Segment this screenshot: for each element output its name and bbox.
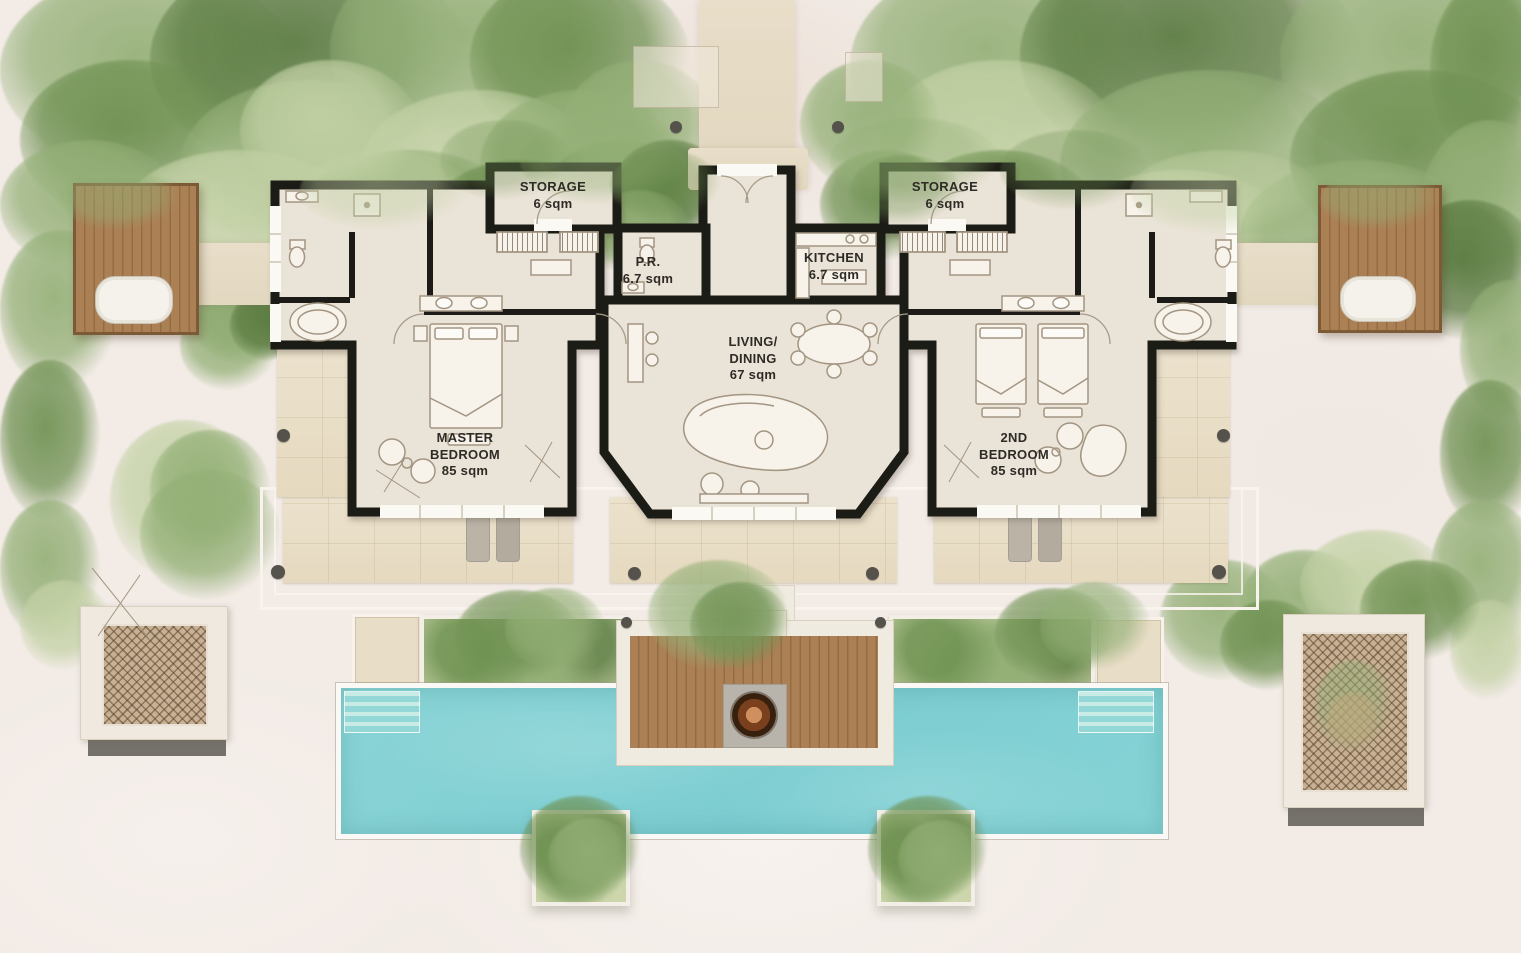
vegetation-blob — [120, 150, 360, 290]
vegetation-blob — [330, 0, 630, 160]
dining-table — [791, 310, 877, 378]
column-dot — [271, 565, 285, 579]
room-label-second-bedroom: 2ND BEDROOM 85 sqm — [954, 430, 1074, 480]
planting-bed-right — [889, 615, 1095, 697]
vegetation-blob — [1430, 500, 1521, 650]
column-dot — [832, 121, 844, 133]
room-area: 85 sqm — [405, 463, 525, 480]
pool-steps-left — [344, 691, 420, 733]
column-dot — [866, 567, 879, 580]
vegetation-blob — [1290, 70, 1521, 250]
terrace-slab-center — [610, 497, 897, 583]
vegetation-blob — [548, 818, 636, 896]
room-name-line1: LIVING/ — [705, 334, 801, 351]
vegetation-blob — [0, 230, 120, 390]
pool-deck-wood — [630, 636, 878, 748]
sun-lounger — [1038, 498, 1062, 562]
vegetation-blob — [505, 588, 605, 670]
stone-pad-right — [1097, 620, 1161, 684]
vegetation-blob — [190, 265, 310, 365]
sun-lounger — [1008, 498, 1032, 562]
vegetation-blob — [1240, 160, 1480, 310]
vegetation-blob — [0, 500, 100, 640]
villa-floor-plan — [0, 0, 1521, 953]
privacy-screen-right-shadow — [1288, 800, 1424, 826]
privacy-screen-left-lattice — [102, 624, 208, 726]
interior-partitions — [279, 189, 1228, 312]
master-bed — [414, 324, 518, 445]
right-deck-path — [1228, 243, 1324, 305]
vegetation-blob — [1060, 70, 1360, 260]
vegetation-blob — [140, 470, 280, 600]
room-name-line1: MASTER — [405, 430, 525, 447]
room-label-living-dining: LIVING/ DINING 67 sqm — [705, 334, 801, 384]
column-dot — [670, 121, 682, 133]
vegetation-blob — [240, 60, 420, 200]
vegetation-blob — [180, 300, 280, 390]
vegetation-blob — [360, 90, 600, 250]
entrance-path — [699, 0, 795, 178]
vegetation-blob — [20, 60, 240, 220]
vegetation-blob — [480, 90, 680, 240]
outdoor-bathtub-left — [95, 276, 173, 324]
fire-pit-pad — [723, 684, 787, 748]
room-name: KITCHEN — [790, 250, 878, 267]
column-dot — [621, 617, 632, 628]
vegetation-blob — [1360, 560, 1480, 660]
room-label-storage-right: STORAGE 6 sqm — [885, 179, 1005, 212]
outdoor-bath-deck-right — [1318, 185, 1442, 333]
second-closets — [900, 232, 1007, 275]
room-area: 67 sqm — [705, 367, 801, 384]
fire-bowl — [732, 693, 776, 737]
room-area: 6 sqm — [885, 196, 1005, 213]
vegetation-blob — [1440, 380, 1521, 530]
room-label-kitchen: KITCHEN 6.7 sqm — [790, 250, 878, 283]
room-area: 6.7 sqm — [790, 267, 878, 284]
master-bath-fixtures — [286, 191, 380, 267]
vegetation-blob — [995, 588, 1115, 680]
second-bedroom-vanity — [1002, 296, 1084, 311]
vegetation-blob — [900, 150, 1100, 290]
column-dot — [875, 617, 886, 628]
entrance-hall-walls — [703, 170, 791, 316]
vegetation-blob — [180, 80, 440, 250]
vegetation-blob — [800, 60, 940, 190]
master-bathtub — [290, 303, 346, 341]
vegetation-blob — [0, 140, 180, 270]
vegetation-blob — [1220, 600, 1320, 690]
terrace-slab-right — [934, 497, 1228, 583]
vegetation-blob — [1450, 600, 1521, 700]
room-name: STORAGE — [885, 179, 1005, 196]
vegetation-blob — [1160, 560, 1290, 680]
room-name-line2: BEDROOM — [954, 447, 1074, 464]
vegetation-blob — [1300, 530, 1450, 640]
faint-pad-top-left — [633, 46, 719, 108]
stone-pad-left — [355, 617, 419, 683]
room-name-line2: DINING — [705, 351, 801, 368]
living-dining-walls — [604, 300, 904, 514]
vegetation-blob — [150, 430, 270, 550]
vegetation-blob — [898, 820, 986, 898]
second-bathtub — [1155, 303, 1211, 341]
vegetation-blob — [850, 0, 1150, 170]
vegetation-blob — [1060, 190, 1220, 300]
privacy-screen-left — [80, 606, 228, 740]
vegetation-blob — [1020, 0, 1360, 170]
terrace-outer-frame — [260, 487, 1259, 610]
vegetation-blob — [430, 160, 610, 280]
bar-counter — [628, 324, 658, 382]
room-area: 85 sqm — [954, 463, 1074, 480]
room-name: STORAGE — [493, 179, 613, 196]
column-dot — [1212, 565, 1226, 579]
bottom-planter-left — [532, 810, 630, 906]
vegetation-blob — [110, 420, 260, 580]
room-name: P.R. — [608, 254, 688, 271]
second-bath-fixtures — [1126, 191, 1231, 267]
site-plan-canvas: STORAGE 6 sqm STORAGE 6 sqm P.R. 6.7 sqm… — [0, 0, 1521, 953]
privacy-screen-right — [1283, 614, 1425, 808]
side-patio-right — [1152, 347, 1230, 497]
vegetation-blob — [610, 140, 730, 250]
vegetation-blob — [60, 170, 180, 230]
column-dot — [628, 567, 641, 580]
entrance-porch — [688, 148, 808, 190]
left-deck-path — [188, 243, 284, 305]
vegetation-blob — [1326, 692, 1382, 752]
vegetation-blob — [960, 200, 1120, 310]
privacy-screen-right-lattice — [1301, 632, 1409, 792]
vegetation-layer-over — [0, 0, 1521, 953]
curved-sofa — [684, 394, 828, 503]
vegetation-blob — [690, 582, 790, 670]
planting-bed-left — [420, 615, 626, 697]
room-area: 6 sqm — [493, 196, 613, 213]
column-dot — [277, 429, 290, 442]
vegetation-blob — [1400, 200, 1521, 340]
vegetation-blob — [1130, 150, 1320, 234]
vegetation-blob — [1040, 582, 1150, 670]
terrace-inner-frame — [274, 487, 1243, 595]
master-vanity — [420, 296, 502, 311]
scenery-layer — [0, 0, 1521, 953]
room-name-line1: 2ND — [954, 430, 1074, 447]
vegetation-blob — [300, 150, 470, 230]
vegetation-blob — [455, 590, 580, 682]
vegetation-blob — [610, 150, 720, 220]
room-label-powder-room: P.R. 6.7 sqm — [608, 254, 688, 287]
vegetation-blob — [0, 0, 300, 170]
vegetation-blob — [648, 560, 788, 670]
outdoor-bathtub-right — [1340, 276, 1416, 322]
vegetation-blob — [520, 796, 640, 904]
vegetation-blob — [1420, 120, 1521, 300]
room-label-storage-left: STORAGE 6 sqm — [493, 179, 613, 212]
vegetation-blob — [20, 580, 110, 670]
vegetation-blob — [1240, 550, 1370, 660]
privacy-screen-left-shadow — [88, 730, 226, 756]
vegetation-blob — [150, 0, 470, 170]
pool-deck-step — [723, 610, 787, 638]
vegetation-layer-under — [0, 0, 1521, 953]
room-area: 6.7 sqm — [608, 271, 688, 288]
sun-lounger — [496, 498, 520, 562]
master-closets — [497, 232, 598, 275]
column-dots-layer — [0, 0, 1521, 953]
room-label-master-bedroom: MASTER BEDROOM 85 sqm — [405, 430, 525, 480]
vegetation-blob — [868, 796, 988, 904]
vegetation-blob — [1000, 130, 1150, 210]
room-name-line2: BEDROOM — [405, 447, 525, 464]
second-bedroom-beds — [976, 324, 1088, 417]
vegetation-blob — [1315, 660, 1393, 752]
vegetation-blob — [1430, 0, 1521, 160]
vegetation-blob — [300, 150, 520, 280]
bottom-planter-right — [877, 810, 975, 906]
pool-deck-frame — [616, 620, 894, 766]
vegetation-blob — [1280, 0, 1521, 170]
corner-braces — [92, 442, 979, 640]
pool-steps-right — [1078, 691, 1154, 733]
pool-deck-walkway — [715, 585, 795, 625]
sun-lounger — [466, 498, 490, 562]
side-patio-left — [277, 347, 353, 497]
swimming-pool — [336, 683, 1168, 839]
vegetation-blob — [1320, 170, 1440, 230]
vegetation-blob — [470, 0, 690, 150]
vegetation-blob — [1060, 170, 1300, 320]
faint-pad-top-right — [845, 52, 883, 102]
vegetation-blob — [0, 360, 100, 520]
vegetation-blob — [230, 290, 310, 360]
terrace-slab-left — [283, 497, 573, 583]
outdoor-bath-deck-left — [73, 183, 199, 335]
vegetation-blob — [1460, 280, 1521, 420]
column-dot — [1217, 429, 1230, 442]
